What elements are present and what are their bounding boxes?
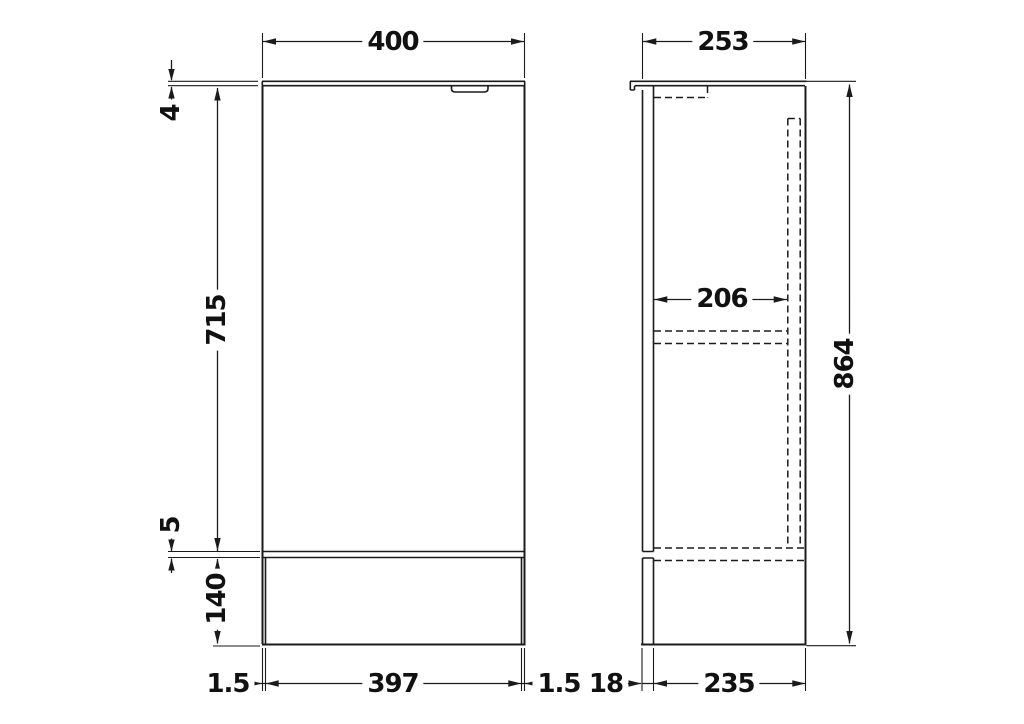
side-view-arrowheads (629, 38, 853, 686)
side-view-extension-lines (642, 33, 856, 691)
dim-internal-depth: 206 (691, 286, 752, 312)
bottom-panel-hidden (654, 548, 805, 561)
back-panel-hidden (788, 119, 800, 549)
technical-drawing-canvas: 400 4 715 5 140 1.5 397 1.5 253 206 864 … (0, 0, 1024, 724)
dim-plinth-height: 140 (204, 568, 230, 629)
side-view-hidden-lines (654, 86, 805, 561)
handle-recess-side (654, 86, 708, 98)
dim-overall-height: 864 (832, 333, 858, 394)
front-view-details (262, 81, 525, 644)
shelf-hidden (654, 331, 787, 344)
dim-front-offset: 18 (584, 671, 628, 697)
dim-plinth-inset-left: 1.5 (201, 671, 254, 697)
side-view-details (630, 81, 807, 644)
dim-front-overall-width: 400 (362, 29, 423, 55)
dim-plinth-inset-right: 1.5 (532, 671, 585, 697)
drawing-linework (0, 0, 1024, 724)
front-view-outline (262, 86, 526, 645)
dim-carcass-depth: 235 (698, 671, 759, 697)
side-view-dimension-lines (620, 42, 850, 684)
dim-side-overall-depth: 253 (692, 29, 753, 55)
dim-worktop-thickness: 4 (158, 99, 184, 126)
dim-door-height: 715 (204, 289, 230, 350)
dim-gap-door-plinth: 5 (158, 511, 184, 538)
dim-plinth-width: 397 (362, 671, 423, 697)
handle-recess-front (452, 86, 489, 92)
